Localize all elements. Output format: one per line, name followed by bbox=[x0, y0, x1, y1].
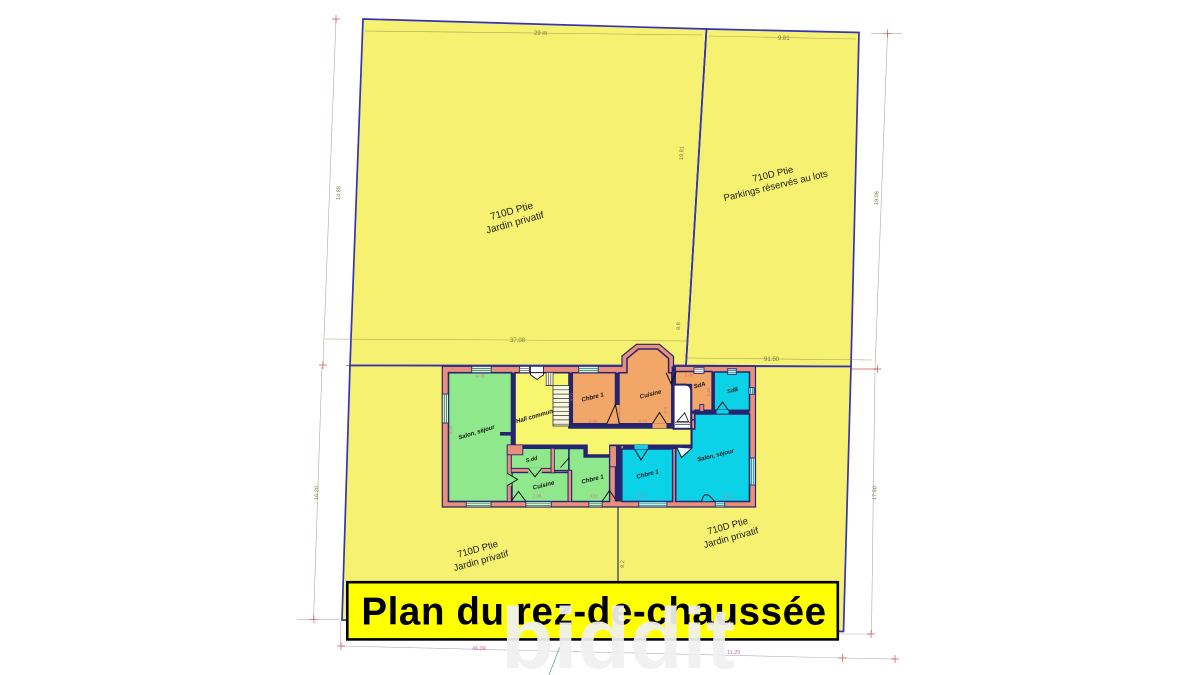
svg-text:9.81: 9.81 bbox=[778, 36, 790, 42]
svg-text:19.06: 19.06 bbox=[874, 191, 880, 205]
svg-text:19.81: 19.81 bbox=[679, 146, 685, 160]
svg-text:4.03: 4.03 bbox=[476, 374, 485, 379]
svg-text:4.50: 4.50 bbox=[448, 425, 453, 434]
svg-text:7.08: 7.08 bbox=[533, 494, 542, 499]
svg-text:14.88: 14.88 bbox=[336, 186, 342, 200]
svg-text:3.81: 3.81 bbox=[590, 494, 599, 499]
svg-text:9.8: 9.8 bbox=[676, 322, 682, 330]
svg-text:91.50: 91.50 bbox=[764, 357, 780, 363]
svg-text:2.08: 2.08 bbox=[685, 373, 694, 378]
svg-text:biddit: biddit bbox=[501, 591, 735, 675]
svg-text:3.21: 3.21 bbox=[570, 392, 575, 401]
svg-text:1.98: 1.98 bbox=[706, 387, 711, 396]
svg-text:9.2: 9.2 bbox=[620, 560, 626, 568]
svg-text:17.50: 17.50 bbox=[872, 486, 878, 500]
svg-text:37.08: 37.08 bbox=[510, 338, 526, 344]
svg-text:16.20: 16.20 bbox=[314, 486, 320, 500]
svg-text:2.98: 2.98 bbox=[589, 419, 598, 424]
svg-text:29 m: 29 m bbox=[534, 31, 547, 37]
svg-text:4.41: 4.41 bbox=[639, 419, 648, 424]
svg-text:2.6: 2.6 bbox=[663, 406, 668, 413]
svg-text:46.08: 46.08 bbox=[472, 646, 486, 652]
svg-text:2.77: 2.77 bbox=[638, 494, 647, 499]
svg-text:4.71: 4.71 bbox=[723, 494, 732, 499]
